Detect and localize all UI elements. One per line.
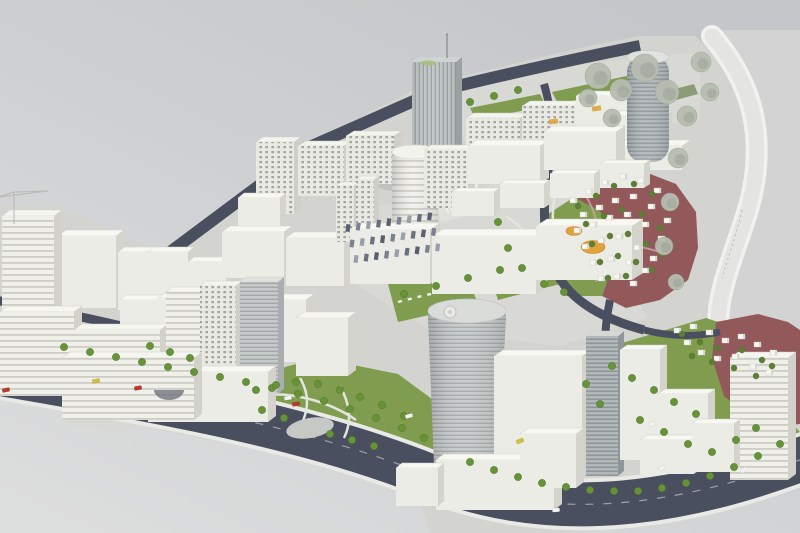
- house: [574, 228, 581, 233]
- house: [634, 245, 641, 250]
- house: [630, 194, 637, 199]
- tree: [432, 282, 439, 289]
- tree: [346, 405, 353, 412]
- building-glass-slab-east: [586, 331, 624, 476]
- house: [582, 244, 589, 249]
- house: [580, 212, 587, 217]
- house: [770, 350, 777, 355]
- house: [614, 274, 621, 279]
- tree: [619, 207, 625, 213]
- house: [698, 350, 705, 355]
- tree: [708, 448, 715, 455]
- tree: [631, 181, 637, 187]
- house: [590, 222, 597, 227]
- tree: [378, 401, 385, 408]
- building-office-slab-a: [58, 230, 124, 308]
- tree: [514, 473, 521, 480]
- tree: [186, 354, 193, 361]
- tree: [709, 359, 715, 365]
- tree: [715, 345, 721, 351]
- house: [596, 205, 603, 210]
- house: [706, 330, 713, 335]
- riverside-tree: [668, 148, 688, 168]
- car: [552, 508, 560, 513]
- tree: [538, 479, 545, 486]
- tree: [731, 365, 737, 371]
- riverside-tree: [661, 193, 679, 211]
- house: [754, 342, 761, 347]
- tree: [216, 373, 223, 380]
- tree: [692, 410, 699, 417]
- tree: [634, 487, 641, 494]
- house: [616, 234, 623, 239]
- house: [766, 370, 773, 375]
- tree: [752, 424, 759, 431]
- tree: [560, 288, 567, 295]
- tree: [776, 440, 783, 447]
- tree: [589, 241, 595, 247]
- house: [626, 260, 633, 265]
- tree: [504, 244, 511, 251]
- tree: [601, 213, 607, 219]
- building-curved-complex: [62, 352, 202, 420]
- house: [638, 178, 645, 183]
- tree: [138, 358, 145, 365]
- house: [570, 198, 577, 203]
- building-mid-box-e: [296, 312, 356, 376]
- riverside-tree: [631, 54, 659, 82]
- house: [586, 189, 593, 194]
- tree: [597, 259, 603, 265]
- building-campus-block-a: [468, 140, 549, 184]
- tree: [684, 440, 691, 447]
- tree: [628, 374, 635, 381]
- tree: [356, 393, 363, 400]
- tree: [242, 378, 249, 385]
- tree: [490, 92, 497, 99]
- tree: [697, 339, 703, 345]
- tree: [370, 442, 377, 449]
- tree: [670, 398, 677, 405]
- tree: [754, 452, 761, 459]
- tree: [252, 386, 259, 393]
- tree: [164, 363, 171, 370]
- tree: [650, 386, 657, 393]
- tree: [398, 424, 405, 431]
- building-hall-main: [432, 229, 547, 294]
- house: [642, 268, 649, 273]
- riverside-tree: [610, 79, 632, 101]
- tree: [575, 203, 581, 209]
- tree: [611, 183, 617, 189]
- house: [620, 174, 627, 179]
- house: [590, 260, 597, 265]
- house: [598, 238, 605, 243]
- house: [648, 204, 655, 209]
- tree: [732, 436, 739, 443]
- building-construction-highrise: [2, 210, 62, 312]
- building-campus-row-a: [452, 188, 500, 216]
- tree: [60, 343, 67, 350]
- house: [608, 256, 615, 261]
- tree: [166, 348, 173, 355]
- tree: [292, 378, 299, 385]
- house: [732, 354, 739, 359]
- tree: [272, 381, 279, 388]
- tree: [336, 386, 343, 393]
- tree: [679, 331, 685, 337]
- tree: [518, 264, 525, 271]
- tree: [658, 484, 665, 491]
- photo-of-architectural-model: Architectural scale model of a city dist…: [0, 0, 800, 533]
- tree: [190, 368, 197, 375]
- house: [650, 256, 657, 261]
- rooftop-helipad: [420, 60, 436, 65]
- building-mid-block-b: [222, 226, 292, 278]
- building-front-low-b: [396, 463, 444, 506]
- tree: [400, 290, 407, 297]
- tree: [607, 233, 613, 239]
- house: [690, 324, 697, 329]
- tree: [258, 406, 265, 413]
- riverside-tree: [603, 109, 621, 127]
- tree: [86, 348, 93, 355]
- riverside-tree: [701, 83, 719, 101]
- tree: [682, 479, 689, 486]
- building-east-box-b: [640, 435, 701, 474]
- tree: [348, 436, 355, 443]
- tree: [586, 486, 593, 493]
- tree: [636, 416, 643, 423]
- riverside-tree: [655, 80, 679, 104]
- tree: [608, 362, 615, 369]
- tree: [372, 414, 379, 421]
- tree: [730, 463, 737, 470]
- building-campus-row-b: [500, 180, 550, 208]
- building-mid-block-a: [238, 193, 286, 230]
- tree: [623, 273, 629, 279]
- tree: [643, 241, 649, 247]
- building-south-box: [520, 428, 584, 488]
- house: [684, 340, 691, 345]
- tree: [320, 397, 327, 404]
- tree: [610, 487, 617, 494]
- riverside-tree: [579, 89, 597, 107]
- tree: [540, 280, 547, 287]
- tree: [759, 357, 765, 363]
- tree: [490, 466, 497, 473]
- riverside-tree: [585, 63, 611, 89]
- tree: [280, 414, 287, 421]
- tree: [739, 347, 745, 353]
- riverside-tree: [668, 274, 684, 290]
- tree: [466, 98, 473, 105]
- house: [602, 180, 609, 185]
- tree: [466, 458, 473, 465]
- tree: [615, 253, 621, 259]
- tree: [562, 483, 569, 490]
- tree: [112, 353, 119, 360]
- house: [750, 364, 757, 369]
- tree: [326, 430, 333, 437]
- city-model-scene: Architectural scale model of a city dist…: [0, 0, 800, 533]
- tree: [496, 266, 503, 273]
- tree: [660, 428, 667, 435]
- riverside-tree: [655, 237, 673, 255]
- tree: [633, 259, 639, 265]
- tree: [657, 225, 663, 231]
- tree: [596, 400, 603, 407]
- tree: [146, 342, 153, 349]
- tree: [753, 373, 759, 379]
- house: [612, 198, 619, 203]
- house: [642, 222, 649, 227]
- tree: [420, 434, 427, 441]
- tree: [314, 380, 321, 387]
- house: [714, 356, 721, 361]
- house: [738, 334, 745, 339]
- tree: [649, 191, 655, 197]
- house: [624, 212, 631, 217]
- tree: [689, 353, 695, 359]
- tree: [583, 221, 589, 227]
- house: [630, 281, 637, 286]
- tree: [706, 472, 713, 479]
- riverside-tree: [677, 106, 697, 126]
- tree: [582, 380, 589, 387]
- tree: [294, 390, 301, 397]
- riverside-tree: [691, 52, 711, 72]
- house: [598, 276, 605, 281]
- tree: [593, 193, 599, 199]
- tree: [494, 218, 501, 225]
- tree: [649, 267, 655, 273]
- tree: [625, 231, 631, 237]
- tree: [639, 211, 645, 217]
- house: [654, 188, 661, 193]
- tree: [605, 275, 611, 281]
- house: [664, 218, 671, 223]
- tree: [464, 274, 471, 281]
- house: [722, 338, 729, 343]
- tree: [769, 363, 775, 369]
- tree: [514, 86, 521, 93]
